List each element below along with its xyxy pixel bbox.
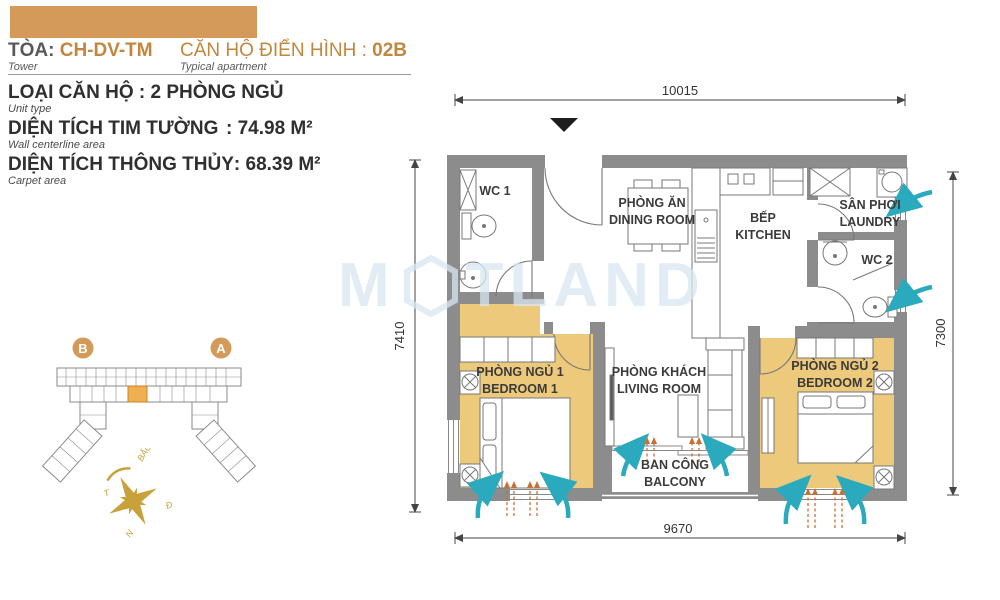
toilet-icon	[863, 297, 897, 317]
svg-text:PHÒNG ĂN: PHÒNG ĂN	[618, 195, 685, 210]
shaft-icon	[810, 168, 850, 196]
bed-icon	[798, 392, 873, 463]
svg-text:PHÒNG NGỦ 1: PHÒNG NGỦ 1	[476, 364, 564, 379]
washing-machine-icon	[877, 168, 907, 197]
kitchen-counter-icon	[692, 168, 770, 338]
compass-south-label: N	[123, 528, 135, 539]
svg-text:PHÒNG KHÁCH: PHÒNG KHÁCH	[612, 364, 706, 379]
wardrobe-icon	[460, 337, 555, 362]
dimension-right-value: 7300	[933, 319, 948, 348]
wardrobe-icon	[797, 338, 873, 358]
highlighted-unit	[128, 386, 147, 402]
tv-cabinet-icon	[605, 348, 614, 446]
dresser-icon	[762, 398, 774, 453]
svg-text:LAUNDRY: LAUNDRY	[840, 215, 901, 229]
carpet-area-line: DIỆN TÍCH THÔNG THỦY : 68.39 M²	[8, 154, 428, 175]
svg-text:DINING ROOM: DINING ROOM	[609, 213, 695, 227]
accent-bar	[10, 6, 257, 38]
nightstand-icon	[460, 464, 480, 487]
tower-a-badge: A	[211, 338, 232, 359]
centerline-sub: Wall centerline area	[8, 139, 428, 151]
svg-text:BEDROOM 1: BEDROOM 1	[482, 382, 558, 396]
carpet-label: DIỆN TÍCH THÔNG THỦY	[8, 154, 234, 175]
svg-text:A: A	[216, 341, 226, 356]
bed-icon	[480, 398, 570, 488]
carpet-sub: Carpet area	[8, 175, 428, 187]
centerline-label: DIỆN TÍCH TIM TƯỜNG	[8, 118, 226, 139]
unit-info: LOẠI CĂN HỘ : 2 PHÒNG NGỦ Unit type DIỆN…	[8, 82, 428, 190]
tower-label: TÒA:	[8, 40, 54, 61]
compass-west-label: T	[102, 487, 112, 499]
tower-header: TÒA: CH-DV-TM Tower	[8, 40, 153, 74]
room-label-living: PHÒNG KHÁCH LIVING ROOM	[612, 364, 706, 396]
svg-text:PHÒNG NGỦ 2: PHÒNG NGỦ 2	[791, 358, 879, 373]
unit-type-sub: Unit type	[8, 103, 428, 115]
room-label-kitchen: BẾP KITCHEN	[735, 210, 791, 242]
nightstand-icon	[874, 466, 894, 489]
svg-text:SÂN PHƠI: SÂN PHƠI	[839, 197, 900, 212]
compass-north-label: BẮC	[135, 448, 154, 463]
centerline-value: : 74.98 M²	[226, 118, 313, 139]
svg-text:BEDROOM 2: BEDROOM 2	[797, 376, 873, 390]
entrance-arrow-icon	[550, 118, 578, 132]
wc1-door	[496, 261, 532, 297]
fridge-icon	[773, 168, 803, 195]
unit-type-line: LOẠI CĂN HỘ : 2 PHÒNG NGỦ	[8, 82, 428, 103]
coffee-table-icon	[678, 395, 698, 437]
svg-text:B: B	[78, 341, 87, 356]
apartment-value: 02B	[372, 40, 407, 61]
centerline-area-line: DIỆN TÍCH TIM TƯỜNG : 74.98 M²	[8, 118, 428, 139]
room-label-wc1: WC 1	[479, 184, 510, 198]
sofa-icon	[706, 338, 744, 449]
nightstand-icon	[874, 371, 894, 394]
room-label-laundry: SÂN PHƠI LAUNDRY	[839, 197, 901, 229]
bedroom1-side-window	[447, 420, 460, 473]
dimension-bottom-value: 9670	[664, 521, 693, 536]
apartment-label: CĂN HỘ ĐIỂN HÌNH :	[180, 40, 367, 61]
sink-icon	[823, 241, 847, 265]
tower-subtitle: Tower	[8, 61, 153, 74]
room-label-balcony: BAN CÔNG BALCONY	[641, 457, 709, 489]
svg-text:BAN CÔNG: BAN CÔNG	[641, 457, 709, 472]
apartment-floor-plan: 10015 9670 7410 7300 WC 1 PHÒNG ĂN DININ…	[380, 80, 1000, 580]
room-label-wc2: WC 2	[861, 253, 892, 267]
svg-text:BALCONY: BALCONY	[644, 475, 706, 489]
floor-plan-page: TÒA: CH-DV-TM Tower CĂN HỘ ĐIỂN HÌNH : 0…	[0, 0, 1000, 600]
entrance-door	[545, 168, 602, 225]
tower-value: CH-DV-TM	[60, 40, 153, 61]
svg-text:LIVING ROOM: LIVING ROOM	[617, 382, 701, 396]
svg-text:BẾP: BẾP	[750, 210, 776, 225]
svg-text:KITCHEN: KITCHEN	[735, 228, 791, 242]
compass-east-label: Đ	[164, 499, 174, 511]
apartment-subtitle: Typical apartment	[180, 61, 407, 74]
dimension-top-value: 10015	[662, 83, 698, 98]
tower-b-badge: B	[73, 338, 94, 359]
header-divider	[8, 74, 411, 75]
sink-icon	[460, 262, 486, 288]
wc2-door	[818, 287, 854, 323]
compass-rose: BẮC T Đ N	[85, 448, 200, 563]
apartment-header: CĂN HỘ ĐIỂN HÌNH : 02B Typical apartment	[180, 40, 407, 74]
dimension-left-value: 7410	[392, 322, 407, 351]
carpet-value: : 68.39 M²	[234, 154, 321, 175]
shaft-icon	[460, 170, 476, 210]
toilet-icon	[462, 213, 496, 239]
